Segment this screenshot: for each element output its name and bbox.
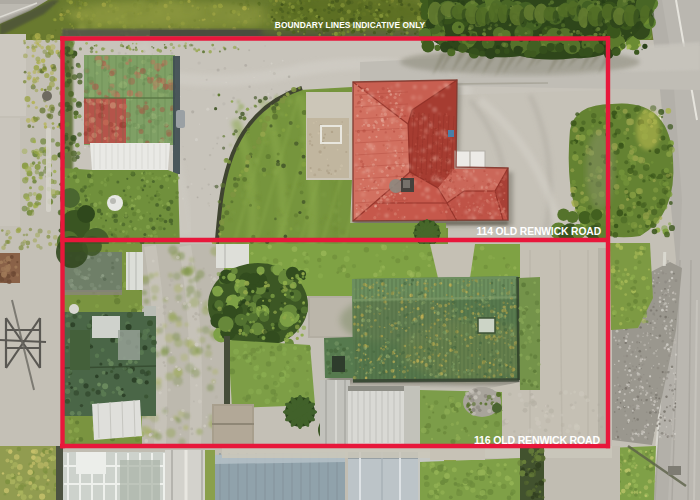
svg-text:116 OLD RENWICK ROAD: 116 OLD RENWICK ROAD (474, 434, 601, 446)
svg-text:114 OLD RENWICK ROAD: 114 OLD RENWICK ROAD (477, 226, 601, 237)
svg-text:BOUNDARY LINES INDICATIVE ONLY: BOUNDARY LINES INDICATIVE ONLY (275, 20, 426, 30)
